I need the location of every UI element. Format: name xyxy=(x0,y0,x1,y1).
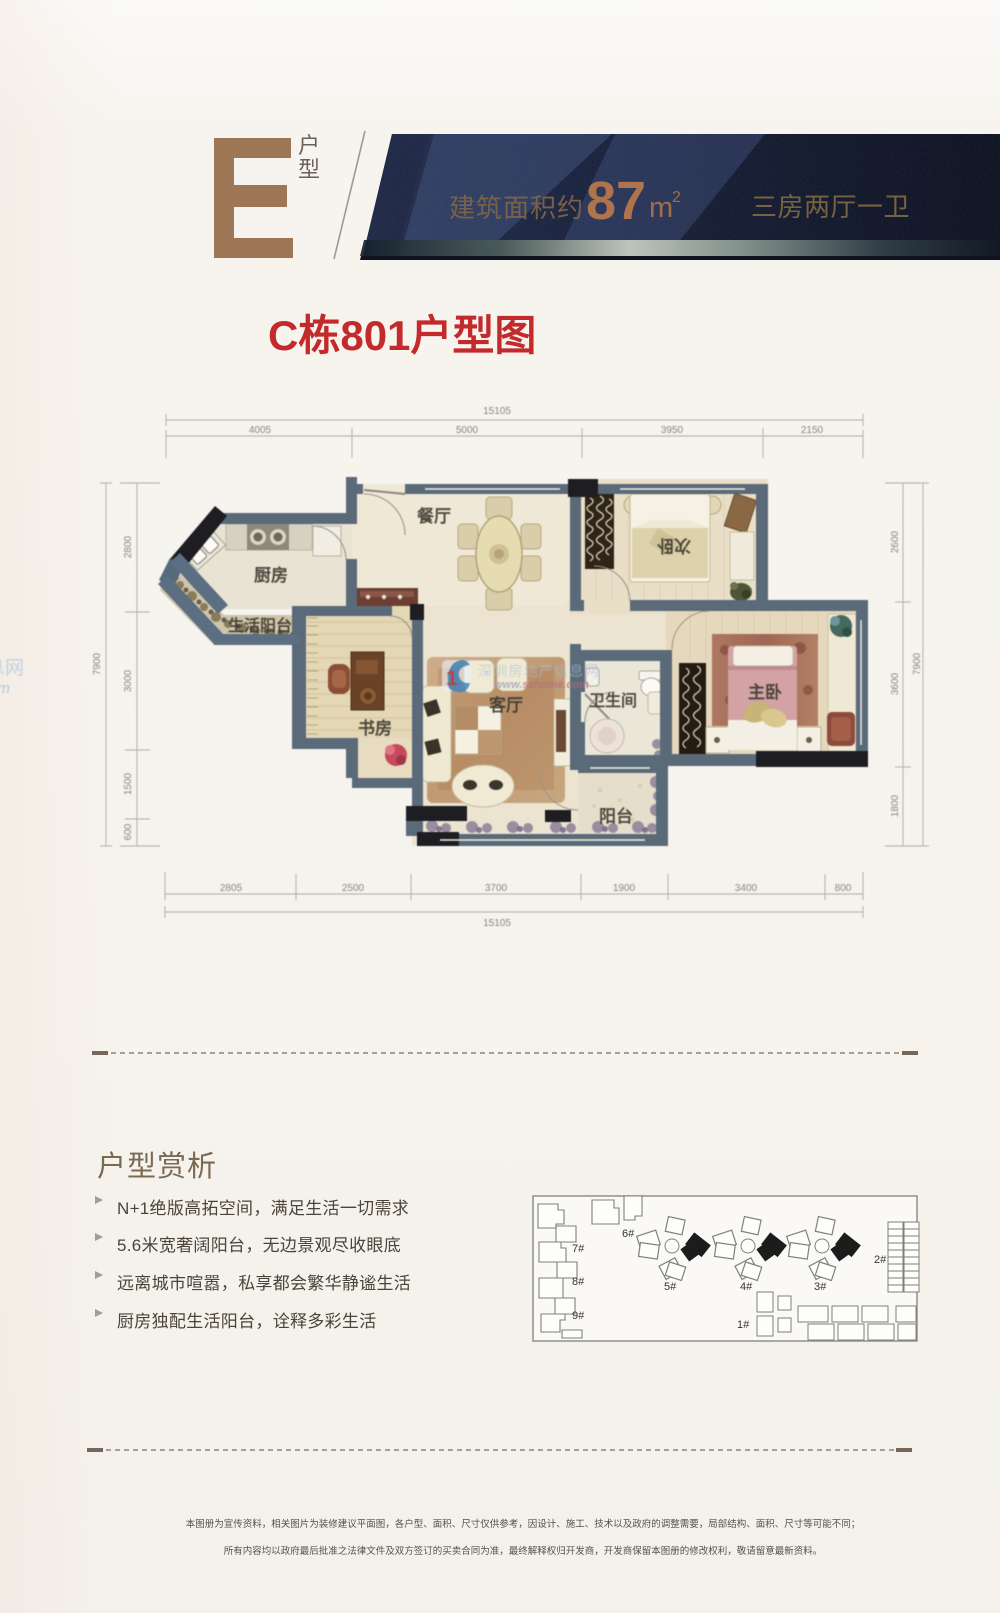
svg-text:3600: 3600 xyxy=(890,672,901,695)
svg-text:阳台: 阳台 xyxy=(599,806,633,826)
svg-text:1500: 1500 xyxy=(123,772,134,795)
svg-text:厨房: 厨房 xyxy=(254,565,288,585)
svg-text:息网: 息网 xyxy=(0,657,24,679)
svg-text:2500: 2500 xyxy=(342,883,365,894)
svg-text:4#: 4# xyxy=(740,1281,753,1293)
svg-text:卫生间: 卫生间 xyxy=(589,691,637,710)
svg-text:2805: 2805 xyxy=(220,883,243,894)
svg-text:800: 800 xyxy=(835,883,852,894)
svg-text:15105: 15105 xyxy=(483,918,511,929)
svg-text:15105: 15105 xyxy=(483,406,511,417)
svg-text:6#: 6# xyxy=(622,1228,635,1240)
svg-text:客厅: 客厅 xyxy=(488,695,523,715)
svg-text:餐厅: 餐厅 xyxy=(417,506,451,526)
svg-text:3000: 3000 xyxy=(123,669,134,692)
svg-text:次卧: 次卧 xyxy=(657,536,691,556)
svg-text:1#: 1# xyxy=(737,1319,750,1331)
svg-text:7900: 7900 xyxy=(912,652,923,675)
svg-text:5000: 5000 xyxy=(456,425,479,436)
svg-text:5#: 5# xyxy=(664,1281,677,1293)
svg-text:2600: 2600 xyxy=(890,530,901,553)
svg-text:7900: 7900 xyxy=(92,652,103,675)
svg-text:4005: 4005 xyxy=(249,425,272,436)
svg-text:主卧: 主卧 xyxy=(748,682,782,702)
svg-text:深圳房地产信息网: 深圳房地产信息网 xyxy=(478,663,600,679)
svg-text:2#: 2# xyxy=(874,1254,887,1266)
svg-text:7#: 7# xyxy=(572,1243,585,1255)
svg-text:1800: 1800 xyxy=(890,794,901,817)
svg-text:2150: 2150 xyxy=(801,425,824,436)
svg-text:600: 600 xyxy=(123,823,134,840)
svg-text:1: 1 xyxy=(446,667,458,690)
svg-text:3700: 3700 xyxy=(485,883,508,894)
svg-text:3400: 3400 xyxy=(735,883,758,894)
svg-text:www.szhome.com: www.szhome.com xyxy=(494,679,589,691)
svg-text:om: om xyxy=(0,680,10,697)
svg-text:3#: 3# xyxy=(814,1281,827,1293)
svg-text:8#: 8# xyxy=(572,1276,585,1288)
svg-text:书房: 书房 xyxy=(358,718,392,738)
svg-text:1900: 1900 xyxy=(613,883,636,894)
svg-text:9#: 9# xyxy=(572,1310,585,1322)
svg-text:2800: 2800 xyxy=(123,535,134,558)
svg-text:生活阳台: 生活阳台 xyxy=(228,616,292,635)
svg-text:3950: 3950 xyxy=(661,425,684,436)
